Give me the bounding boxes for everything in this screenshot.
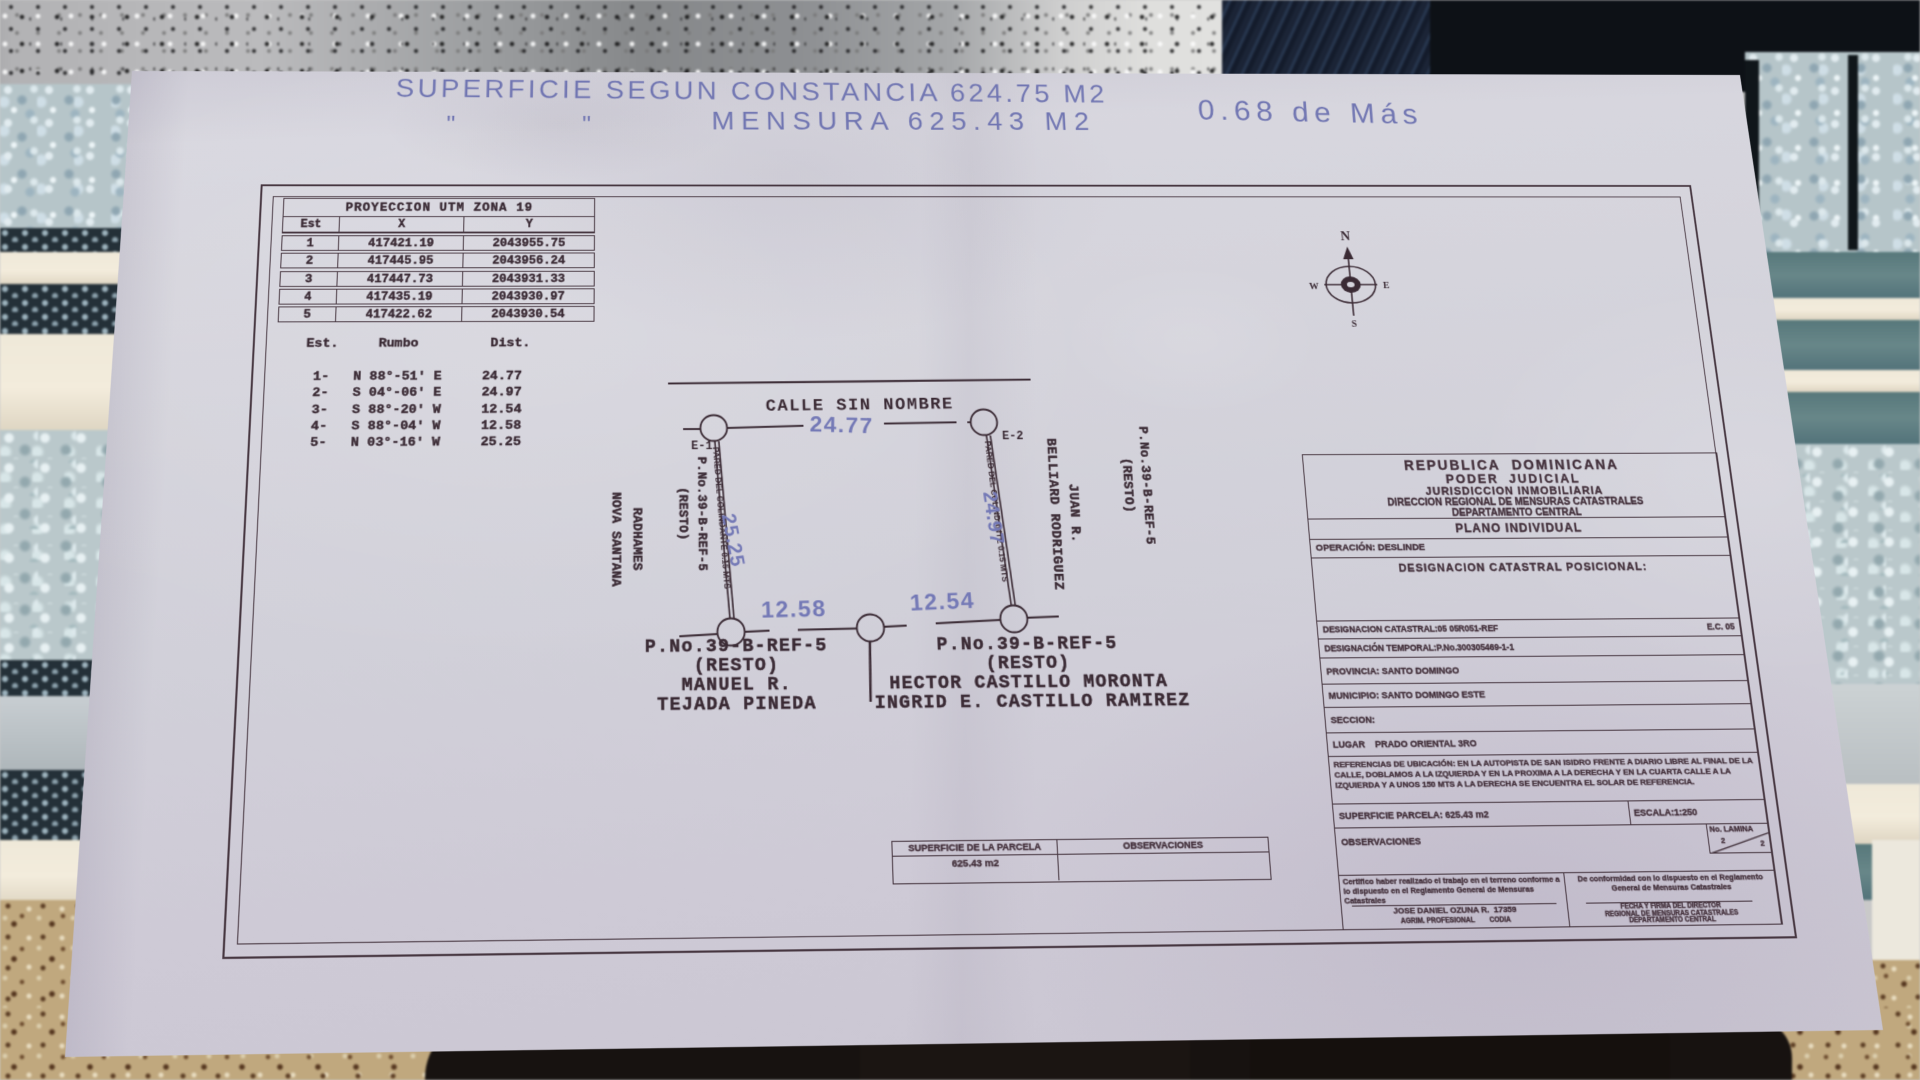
svg-text:E-2: E-2 xyxy=(1002,431,1024,444)
svg-text:E: E xyxy=(1383,280,1390,290)
svg-text:S: S xyxy=(1351,319,1357,329)
svg-text:W: W xyxy=(1309,281,1320,291)
svg-text:CALLE SIN NOMBRE: CALLE SIN NOMBRE xyxy=(765,395,954,416)
svg-text:24.77: 24.77 xyxy=(810,413,874,439)
svg-text:E-1: E-1 xyxy=(691,441,713,454)
svg-text:24.97: 24.97 xyxy=(979,490,1010,546)
svg-text:12.58: 12.58 xyxy=(761,596,828,623)
svg-text:N: N xyxy=(1340,230,1352,244)
svg-text:12.54: 12.54 xyxy=(909,588,976,616)
